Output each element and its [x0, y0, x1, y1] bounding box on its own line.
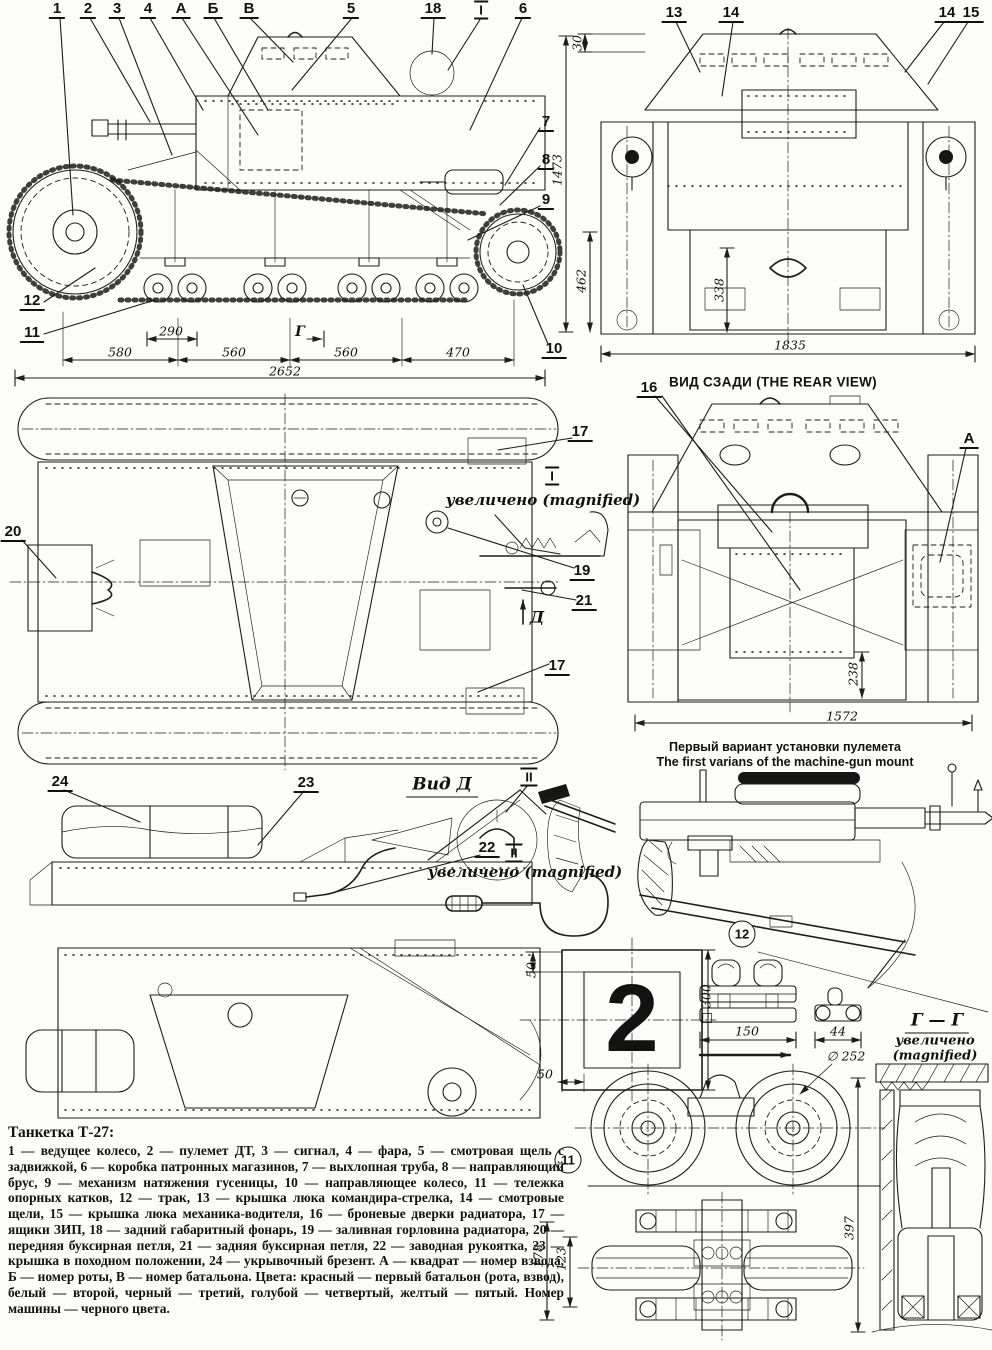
dim-50-bottom: 50 [537, 1067, 553, 1082]
travel-position-view-drawing [26, 785, 608, 1118]
callout-24: 24 [48, 774, 73, 792]
dim-300: □ 300 [699, 984, 714, 1024]
section-mark-4: II [505, 844, 522, 863]
callout-12: 12 [20, 293, 45, 311]
dim-30: 30 [570, 35, 585, 51]
callout-1: 1 [49, 1, 65, 19]
callout-15: 15 [959, 5, 984, 23]
callout-22: 22 [475, 840, 500, 858]
dim-338: 338 [712, 278, 727, 302]
section-gg-drawing [851, 1064, 992, 1332]
callout-10: 10 [542, 341, 567, 359]
blueprint-page: ВИД СЗАДИ (THE REAR VIEW) Первый вариант… [0, 0, 992, 1350]
callout-14b: 14 [935, 5, 960, 23]
callout-2: 2 [80, 1, 96, 19]
legend-title: Танкетка Т-27: [8, 1124, 564, 1142]
bogie-top-view-drawing [540, 1192, 864, 1340]
dim-44: 44 [830, 1024, 846, 1039]
callout-5: 5 [343, 1, 359, 19]
callout-7: 7 [538, 114, 554, 132]
dim-462: 462 [574, 269, 589, 293]
callout-a: А [172, 1, 191, 19]
section-letter-g: Г [295, 324, 305, 340]
magnified-caption-crank: увеличено (magnified) [428, 863, 623, 881]
section-gg-magnified-en: (magnified) [893, 1049, 978, 1064]
view-d-caption: Вид Д [406, 775, 478, 798]
dim-252: ∅ 252 [827, 1049, 866, 1064]
rear-view-caption: ВИД СЗАДИ (THE REAR VIEW) [669, 375, 877, 390]
callout-14a: 14 [719, 5, 744, 23]
callout-a2: А [960, 431, 979, 449]
legend-body: 1 — ведущее колесо, 2 — пулемет ДТ, 3 — … [8, 1143, 564, 1316]
dim-150: 150 [735, 1024, 759, 1039]
callout-v: В [240, 1, 259, 19]
dim-397: 397 [842, 1216, 857, 1240]
callout-13: 13 [662, 5, 687, 23]
mg-mount-caption-ru: Первый вариант установки пулемета [669, 740, 901, 754]
dim-560a: 560 [222, 345, 246, 360]
callout-20: 20 [1, 524, 26, 542]
callout-4: 4 [140, 1, 156, 19]
callout-6: 6 [515, 1, 531, 19]
callout-16: 16 [637, 380, 662, 398]
callout-9: 9 [538, 192, 554, 210]
mg-mount-caption-en: The first varians of the machine-gun mou… [657, 755, 914, 769]
callout-b: Б [204, 1, 223, 19]
view-arrow-letter-d: Д [530, 608, 544, 627]
callout-17b: 17 [545, 658, 570, 676]
circled-12: 12 [729, 921, 756, 948]
callout-23: 23 [294, 775, 319, 793]
section-gg-caption: Г — Г [905, 1011, 969, 1034]
vehicle-number: 2 [605, 964, 658, 1074]
callout-17a: 17 [568, 424, 593, 442]
side-view-drawing [9, 18, 560, 386]
dim-238: 238 [846, 662, 861, 686]
road-wheel-pair-drawing [575, 1064, 885, 1195]
dim-1473: 1473 [550, 154, 565, 186]
section-gg-magnified-ru: увеличено [895, 1034, 974, 1049]
callout-3: 3 [109, 1, 125, 19]
dim-1835: 1835 [774, 338, 806, 353]
callout-18: 18 [421, 1, 446, 19]
legend-block: Танкетка Т-27: 1 — ведущее колесо, 2 — п… [8, 1124, 564, 1316]
section-mark-3: II [520, 768, 537, 787]
top-view-drawing [10, 394, 608, 770]
dim-470: 470 [446, 345, 470, 360]
dim-560b: 560 [334, 345, 358, 360]
dim-2652: 2652 [269, 364, 301, 379]
callout-11: 11 [20, 325, 44, 343]
front-view-drawing [559, 22, 975, 362]
section-mark-1: I [474, 1, 488, 20]
callout-21: 21 [572, 593, 597, 611]
dim-290: 290 [159, 324, 183, 339]
magnified-caption-top: увеличено (magnified) [446, 491, 641, 509]
dim-50-top: 50 [524, 962, 539, 978]
dim-580: 580 [108, 345, 132, 360]
section-mark-2: I [545, 467, 559, 486]
track-links-drawing [700, 960, 861, 1055]
callout-19: 19 [570, 563, 595, 581]
dim-1572: 1572 [826, 709, 858, 724]
rear-view-drawing [628, 396, 978, 731]
